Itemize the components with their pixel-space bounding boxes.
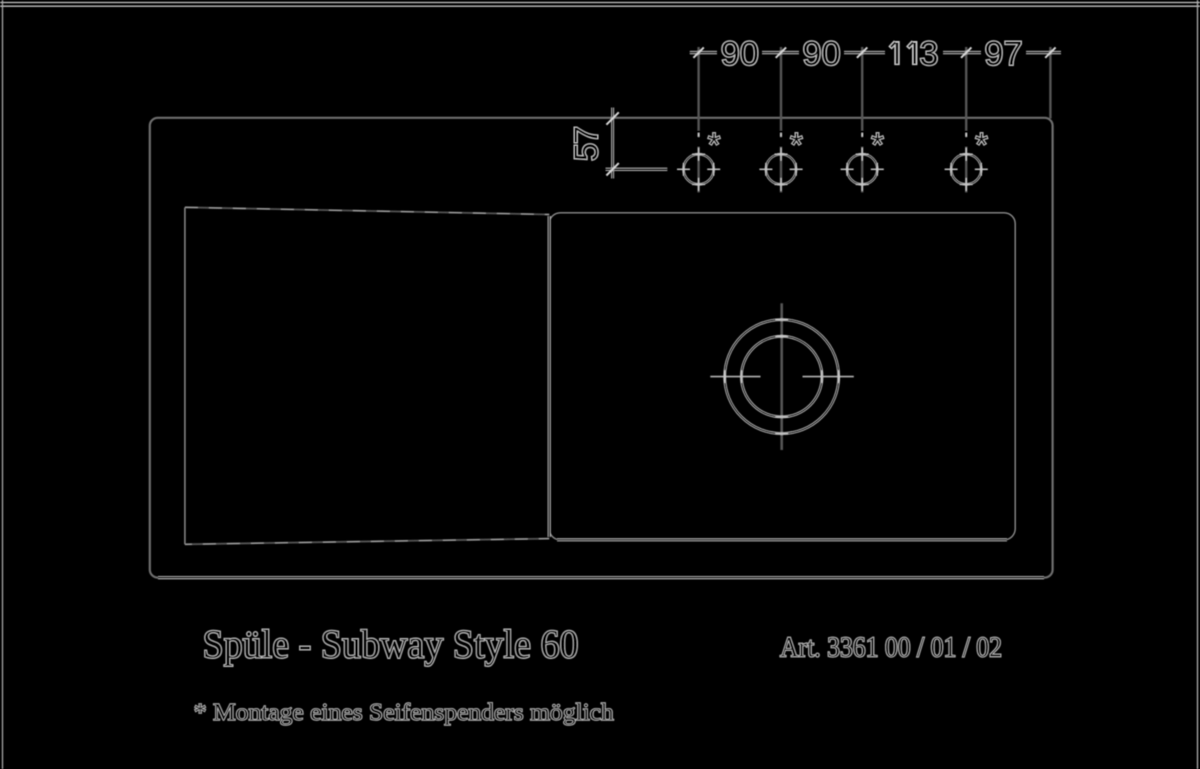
- svg-text:*: *: [790, 126, 803, 163]
- svg-text:*: *: [975, 126, 988, 163]
- svg-text:90: 90: [802, 35, 840, 73]
- svg-text:* Montage eines Seifenspenders: * Montage eines Seifenspenders möglich: [194, 699, 614, 726]
- svg-text:97: 97: [984, 35, 1022, 73]
- svg-text:90: 90: [721, 35, 759, 73]
- svg-text:*: *: [708, 126, 721, 163]
- svg-text:Art. 3361 00 / 01 / 02: Art. 3361 00 / 01 / 02: [780, 633, 1002, 664]
- svg-text:*: *: [871, 126, 884, 163]
- svg-text:57: 57: [567, 127, 604, 161]
- svg-text:Spüle - Subway Style 60: Spüle - Subway Style 60: [203, 622, 579, 667]
- svg-text:3: 3: [919, 35, 938, 73]
